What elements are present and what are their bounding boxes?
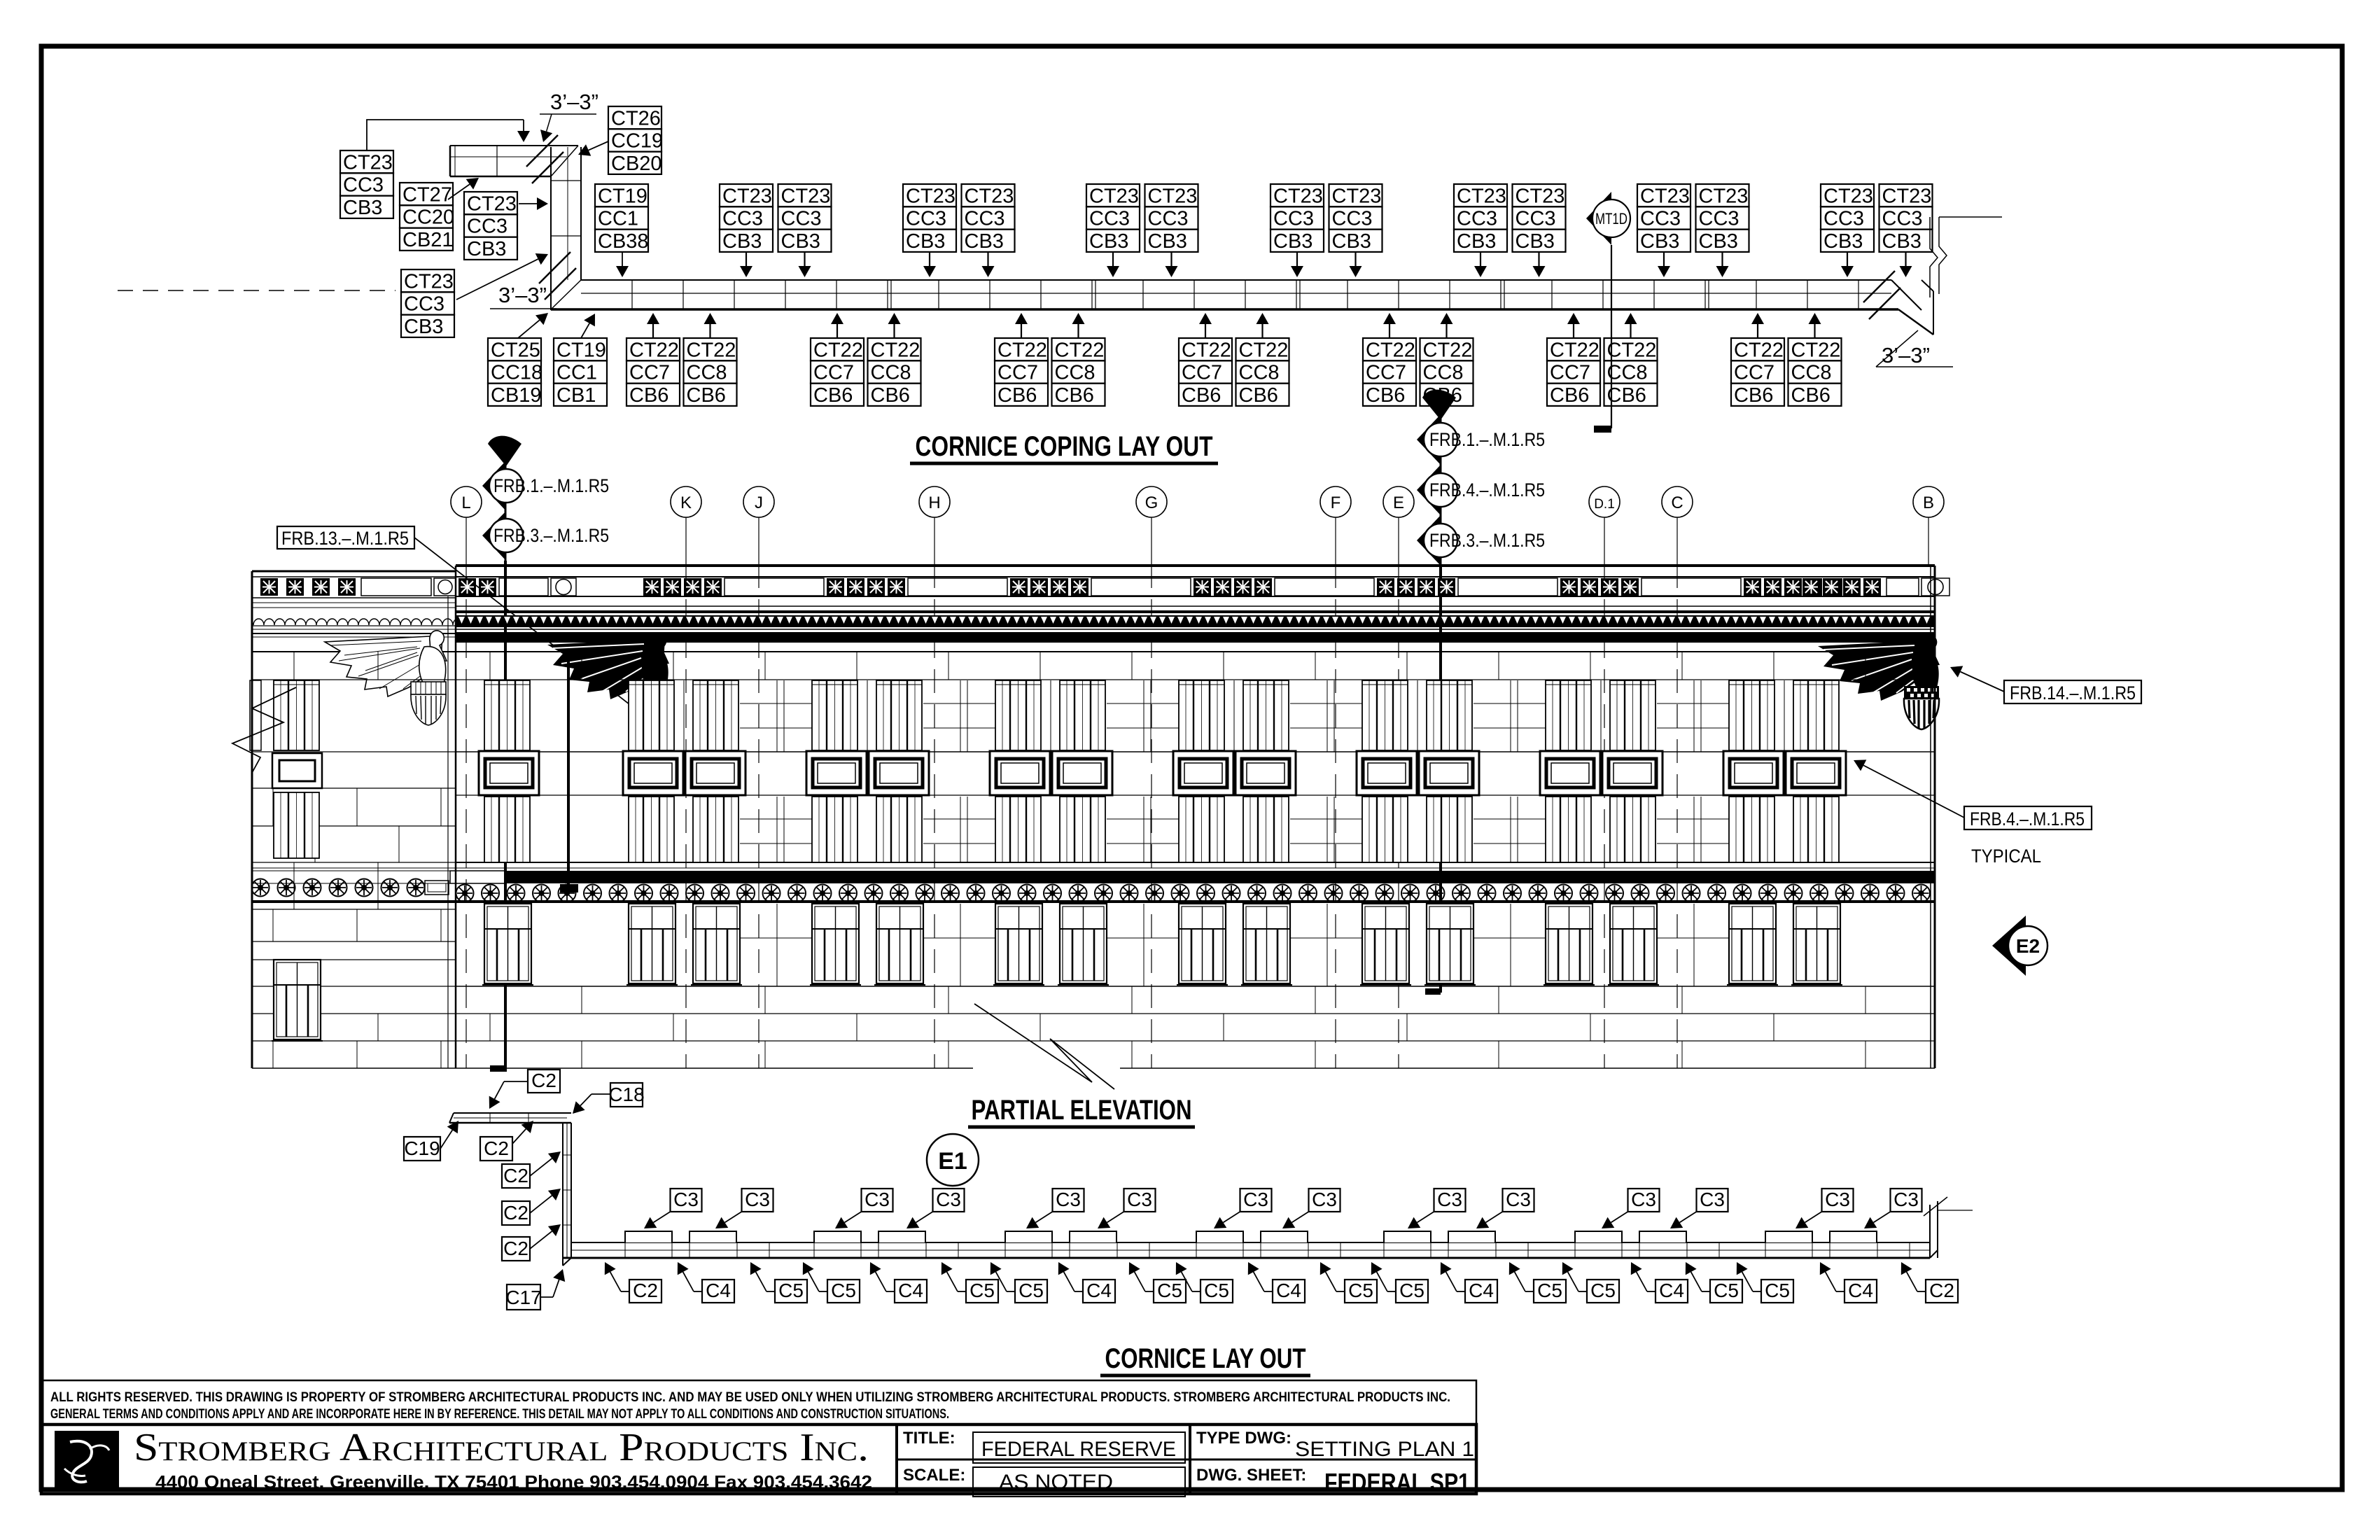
svg-text:CC3: CC3 [404, 293, 444, 316]
svg-text:CB3: CB3 [781, 230, 820, 253]
svg-text:CC7: CC7 [1182, 362, 1222, 384]
svg-text:CT22: CT22 [997, 339, 1047, 361]
svg-text:CB20: CB20 [611, 153, 662, 175]
svg-text:CT23: CT23 [1823, 185, 1873, 207]
svg-text:CB3: CB3 [467, 238, 506, 260]
svg-text:C5: C5 [778, 1280, 804, 1301]
svg-text:CC8: CC8 [1791, 362, 1832, 384]
svg-text:CC3: CC3 [1640, 208, 1681, 230]
svg-text:CC3: CC3 [1148, 208, 1189, 230]
svg-text:CC3: CC3 [1273, 208, 1314, 230]
svg-text:C3: C3 [936, 1189, 961, 1210]
svg-text:E: E [1393, 493, 1404, 512]
svg-text:CT23: CT23 [1699, 185, 1749, 207]
svg-text:CT23: CT23 [1148, 185, 1198, 207]
svg-text:CT23: CT23 [906, 185, 955, 207]
svg-text:CT22: CT22 [1055, 339, 1105, 361]
svg-text:CC3: CC3 [1089, 208, 1130, 230]
svg-text:CT22: CT22 [1791, 339, 1841, 361]
svg-text:CB6: CB6 [1791, 384, 1830, 407]
svg-text:CB38: CB38 [598, 230, 649, 253]
svg-text:CC1: CC1 [556, 362, 597, 384]
svg-text:CC8: CC8 [1239, 362, 1280, 384]
svg-text:H: H [928, 493, 940, 512]
svg-text:CB3: CB3 [1332, 230, 1371, 253]
svg-text:CC3: CC3 [906, 208, 946, 230]
svg-text:C2: C2 [1929, 1280, 1954, 1301]
svg-text:CC7: CC7 [1734, 362, 1774, 384]
svg-text:C5: C5 [1348, 1280, 1373, 1301]
svg-text:C17: C17 [505, 1287, 541, 1308]
svg-text:E1: E1 [938, 1148, 967, 1175]
svg-text:CT23: CT23 [722, 185, 772, 207]
svg-text:CT23: CT23 [343, 151, 393, 174]
svg-text:CC3: CC3 [1457, 208, 1497, 230]
svg-text:CB3: CB3 [1699, 230, 1738, 253]
svg-text:CT22: CT22 [629, 339, 679, 361]
svg-text:C3: C3 [673, 1189, 699, 1210]
svg-text:CC8: CC8 [871, 362, 911, 384]
svg-text:CB3: CB3 [343, 197, 382, 219]
svg-text:C5: C5 [969, 1280, 995, 1301]
svg-text:CC7: CC7 [1550, 362, 1590, 384]
svg-text:CB6: CB6 [1239, 384, 1278, 407]
svg-text:CB3: CB3 [965, 230, 1004, 253]
svg-text:CB3: CB3 [1640, 230, 1679, 253]
svg-text:FRB.3.–.M.1.R5: FRB.3.–.M.1.R5 [493, 525, 609, 546]
svg-text:J: J [755, 493, 763, 512]
svg-text:SETTING PLAN 1: SETTING PLAN 1 [1295, 1438, 1474, 1461]
svg-text:C2: C2 [503, 1165, 528, 1186]
svg-text:AS NOTED: AS NOTED [999, 1471, 1113, 1494]
svg-text:C3: C3 [1056, 1189, 1081, 1210]
svg-text:TYPICAL: TYPICAL [1971, 846, 2041, 867]
svg-text:TYPE DWG:: TYPE DWG: [1196, 1429, 1291, 1448]
svg-text:CT22: CT22 [1423, 339, 1473, 361]
svg-text:C4: C4 [1276, 1280, 1301, 1301]
svg-text:CT22: CT22 [1239, 339, 1289, 361]
svg-text:CB3: CB3 [722, 230, 762, 253]
svg-text:CC3: CC3 [1332, 208, 1373, 230]
svg-text:PARTIAL ELEVATION: PARTIAL ELEVATION [972, 1095, 1192, 1126]
svg-text:CC19: CC19 [611, 130, 663, 153]
svg-text:CT23: CT23 [1640, 185, 1690, 207]
svg-text:C2: C2 [503, 1202, 528, 1224]
svg-text:FRB.1.–.M.1.R5: FRB.1.–.M.1.R5 [493, 475, 609, 496]
svg-text:CT19: CT19 [556, 339, 606, 361]
svg-text:C4: C4 [1469, 1280, 1494, 1301]
svg-text:CT23: CT23 [1457, 185, 1506, 207]
svg-text:E2: E2 [2016, 935, 2040, 957]
svg-text:CT23: CT23 [1882, 185, 1932, 207]
svg-text:CT19: CT19 [598, 185, 647, 207]
svg-text:CB6: CB6 [629, 384, 668, 407]
svg-text:FRB.4.–.M.1.R5: FRB.4.–.M.1.R5 [1970, 808, 2085, 829]
svg-text:CC7: CC7 [997, 362, 1038, 384]
svg-text:CC3: CC3 [1823, 208, 1864, 230]
svg-text:FEDERAL RESERVE: FEDERAL RESERVE [981, 1438, 1176, 1461]
svg-text:CC3: CC3 [965, 208, 1005, 230]
svg-text:L: L [461, 493, 470, 512]
svg-text:CT25: CT25 [491, 339, 540, 361]
svg-text:CT23: CT23 [1332, 185, 1382, 207]
svg-text:C5: C5 [1590, 1280, 1616, 1301]
svg-text:C2: C2 [531, 1070, 556, 1091]
svg-text:FRB.3.–.M.1.R5: FRB.3.–.M.1.R5 [1429, 530, 1545, 551]
svg-text:CC7: CC7 [1366, 362, 1406, 384]
svg-text:CB6: CB6 [1182, 384, 1221, 407]
svg-text:C2: C2 [484, 1137, 509, 1159]
svg-text:C3: C3 [1243, 1189, 1268, 1210]
svg-text:CC18: CC18 [491, 362, 542, 384]
svg-text:CB6: CB6 [871, 384, 910, 407]
svg-text:CT23: CT23 [467, 192, 517, 215]
svg-text:C3: C3 [1700, 1189, 1725, 1210]
svg-text:CC7: CC7 [629, 362, 670, 384]
svg-text:CB6: CB6 [997, 384, 1037, 407]
svg-text:CC1: CC1 [598, 208, 638, 230]
svg-text:CC3: CC3 [1515, 208, 1556, 230]
svg-text:CT23: CT23 [404, 270, 454, 293]
svg-text:FRB.1.–.M.1.R5: FRB.1.–.M.1.R5 [1429, 429, 1545, 450]
svg-text:C5: C5 [1204, 1280, 1229, 1301]
svg-text:CT23: CT23 [965, 185, 1014, 207]
svg-text:CT22: CT22 [687, 339, 736, 361]
svg-text:CC3: CC3 [722, 208, 763, 230]
svg-text:C5: C5 [1399, 1280, 1424, 1301]
svg-text:FRB.4.–.M.1.R5: FRB.4.–.M.1.R5 [1429, 479, 1545, 500]
svg-text:CB6: CB6 [687, 384, 726, 407]
svg-text:C4: C4 [898, 1280, 923, 1301]
svg-text:ALL RIGHTS RESERVED. THIS DRAW: ALL RIGHTS RESERVED. THIS DRAWING IS PRO… [50, 1390, 1450, 1405]
svg-text:CB6: CB6 [813, 384, 853, 407]
svg-text:CT22: CT22 [1734, 339, 1784, 361]
svg-text:C18: C18 [608, 1084, 644, 1105]
svg-text:CB19: CB19 [491, 384, 542, 407]
svg-text:CC8: CC8 [1423, 362, 1464, 384]
svg-text:CC3: CC3 [1699, 208, 1739, 230]
svg-text:C3: C3 [1312, 1189, 1337, 1210]
svg-text:4400 Oneal Street, Greenville,: 4400 Oneal Street, Greenville, TX 75401 … [155, 1471, 872, 1492]
svg-text:C3: C3 [1631, 1189, 1656, 1210]
svg-text:CB6: CB6 [1055, 384, 1094, 407]
svg-text:CB6: CB6 [1550, 384, 1589, 407]
svg-text:TITLE:: TITLE: [903, 1429, 955, 1448]
svg-text:C4: C4 [706, 1280, 731, 1301]
svg-text:CB6: CB6 [1734, 384, 1773, 407]
svg-text:CB3: CB3 [1515, 230, 1555, 253]
svg-text:CC8: CC8 [1055, 362, 1095, 384]
svg-text:FEDERAL SP1: FEDERAL SP1 [1324, 1468, 1470, 1497]
svg-text:D.1: D.1 [1594, 497, 1615, 512]
svg-text:SCALE:: SCALE: [903, 1466, 965, 1485]
svg-text:CB6: CB6 [1607, 384, 1646, 407]
svg-text:CB3: CB3 [404, 316, 443, 338]
svg-text:C3: C3 [1437, 1189, 1462, 1210]
svg-text:Stromberg Architectural Produc: Stromberg Architectural Products Inc. [134, 1426, 869, 1469]
svg-text:C2: C2 [503, 1238, 528, 1259]
svg-text:CB3: CB3 [1273, 230, 1312, 253]
svg-text:C: C [1671, 493, 1683, 512]
svg-text:CT23: CT23 [1273, 185, 1323, 207]
svg-text:CT23: CT23 [1515, 185, 1565, 207]
svg-text:G: G [1145, 493, 1158, 512]
svg-text:B: B [1923, 493, 1934, 512]
svg-text:CT22: CT22 [871, 339, 920, 361]
svg-text:3’–3”: 3’–3” [550, 90, 598, 114]
svg-text:CT22: CT22 [1550, 339, 1599, 361]
svg-text:CC8: CC8 [687, 362, 727, 384]
svg-text:CB1: CB1 [556, 384, 596, 407]
svg-text:K: K [680, 493, 692, 512]
svg-text:GENERAL TERMS AND CONDITIONS A: GENERAL TERMS AND CONDITIONS APPLY AND A… [50, 1407, 949, 1422]
svg-text:C5: C5 [1157, 1280, 1182, 1301]
svg-text:CB3: CB3 [1089, 230, 1128, 253]
svg-text:C3: C3 [1506, 1189, 1531, 1210]
svg-text:CT23: CT23 [781, 185, 831, 207]
svg-text:CB6: CB6 [1366, 384, 1405, 407]
svg-text:C5: C5 [831, 1280, 856, 1301]
svg-text:C3: C3 [1825, 1189, 1850, 1210]
svg-text:CC3: CC3 [467, 216, 507, 238]
svg-text:3’–3”: 3’–3” [498, 283, 547, 307]
svg-text:C3: C3 [1893, 1189, 1919, 1210]
svg-text:CT22: CT22 [813, 339, 863, 361]
svg-text:C3: C3 [864, 1189, 890, 1210]
svg-text:C5: C5 [1537, 1280, 1562, 1301]
svg-text:CB3: CB3 [1882, 230, 1921, 253]
svg-text:CB3: CB3 [1148, 230, 1187, 253]
svg-text:CC20: CC20 [402, 206, 454, 229]
svg-text:CT22: CT22 [1366, 339, 1415, 361]
svg-text:CORNICE LAY OUT: CORNICE LAY OUT [1105, 1343, 1306, 1374]
svg-text:F: F [1331, 493, 1341, 512]
svg-text:C4: C4 [1086, 1280, 1112, 1301]
svg-text:CC3: CC3 [343, 174, 384, 197]
svg-text:FRB.14.–.M.1.R5: FRB.14.–.M.1.R5 [2010, 682, 2136, 703]
svg-text:CB3: CB3 [1457, 230, 1496, 253]
svg-text:CB3: CB3 [1823, 230, 1863, 253]
svg-text:CT22: CT22 [1607, 339, 1657, 361]
svg-text:CC7: CC7 [813, 362, 854, 384]
svg-text:CT26: CT26 [611, 107, 661, 129]
svg-text:CT22: CT22 [1182, 339, 1231, 361]
svg-text:C4: C4 [1848, 1280, 1873, 1301]
svg-text:C5: C5 [1018, 1280, 1044, 1301]
svg-text:C19: C19 [404, 1137, 440, 1159]
svg-text:CC3: CC3 [781, 208, 822, 230]
svg-text:DWG. SHEET:: DWG. SHEET: [1196, 1466, 1306, 1485]
svg-text:C2: C2 [633, 1280, 658, 1301]
svg-text:CORNICE COPING LAY OUT: CORNICE COPING LAY OUT [916, 431, 1213, 462]
svg-text:CB21: CB21 [402, 229, 454, 251]
svg-text:C5: C5 [1765, 1280, 1790, 1301]
svg-text:FRB.13.–.M.1.R5: FRB.13.–.M.1.R5 [281, 528, 409, 549]
svg-text:C3: C3 [1127, 1189, 1152, 1210]
svg-text:CT27: CT27 [402, 183, 452, 206]
svg-text:C5: C5 [1714, 1280, 1739, 1301]
svg-text:C3: C3 [745, 1189, 770, 1210]
svg-text:CT23: CT23 [1089, 185, 1139, 207]
svg-text:C4: C4 [1659, 1280, 1684, 1301]
svg-text:CC3: CC3 [1882, 208, 1923, 230]
svg-text:CB3: CB3 [906, 230, 945, 253]
svg-text:MT1D: MT1D [1595, 210, 1627, 227]
svg-text:CC8: CC8 [1607, 362, 1648, 384]
